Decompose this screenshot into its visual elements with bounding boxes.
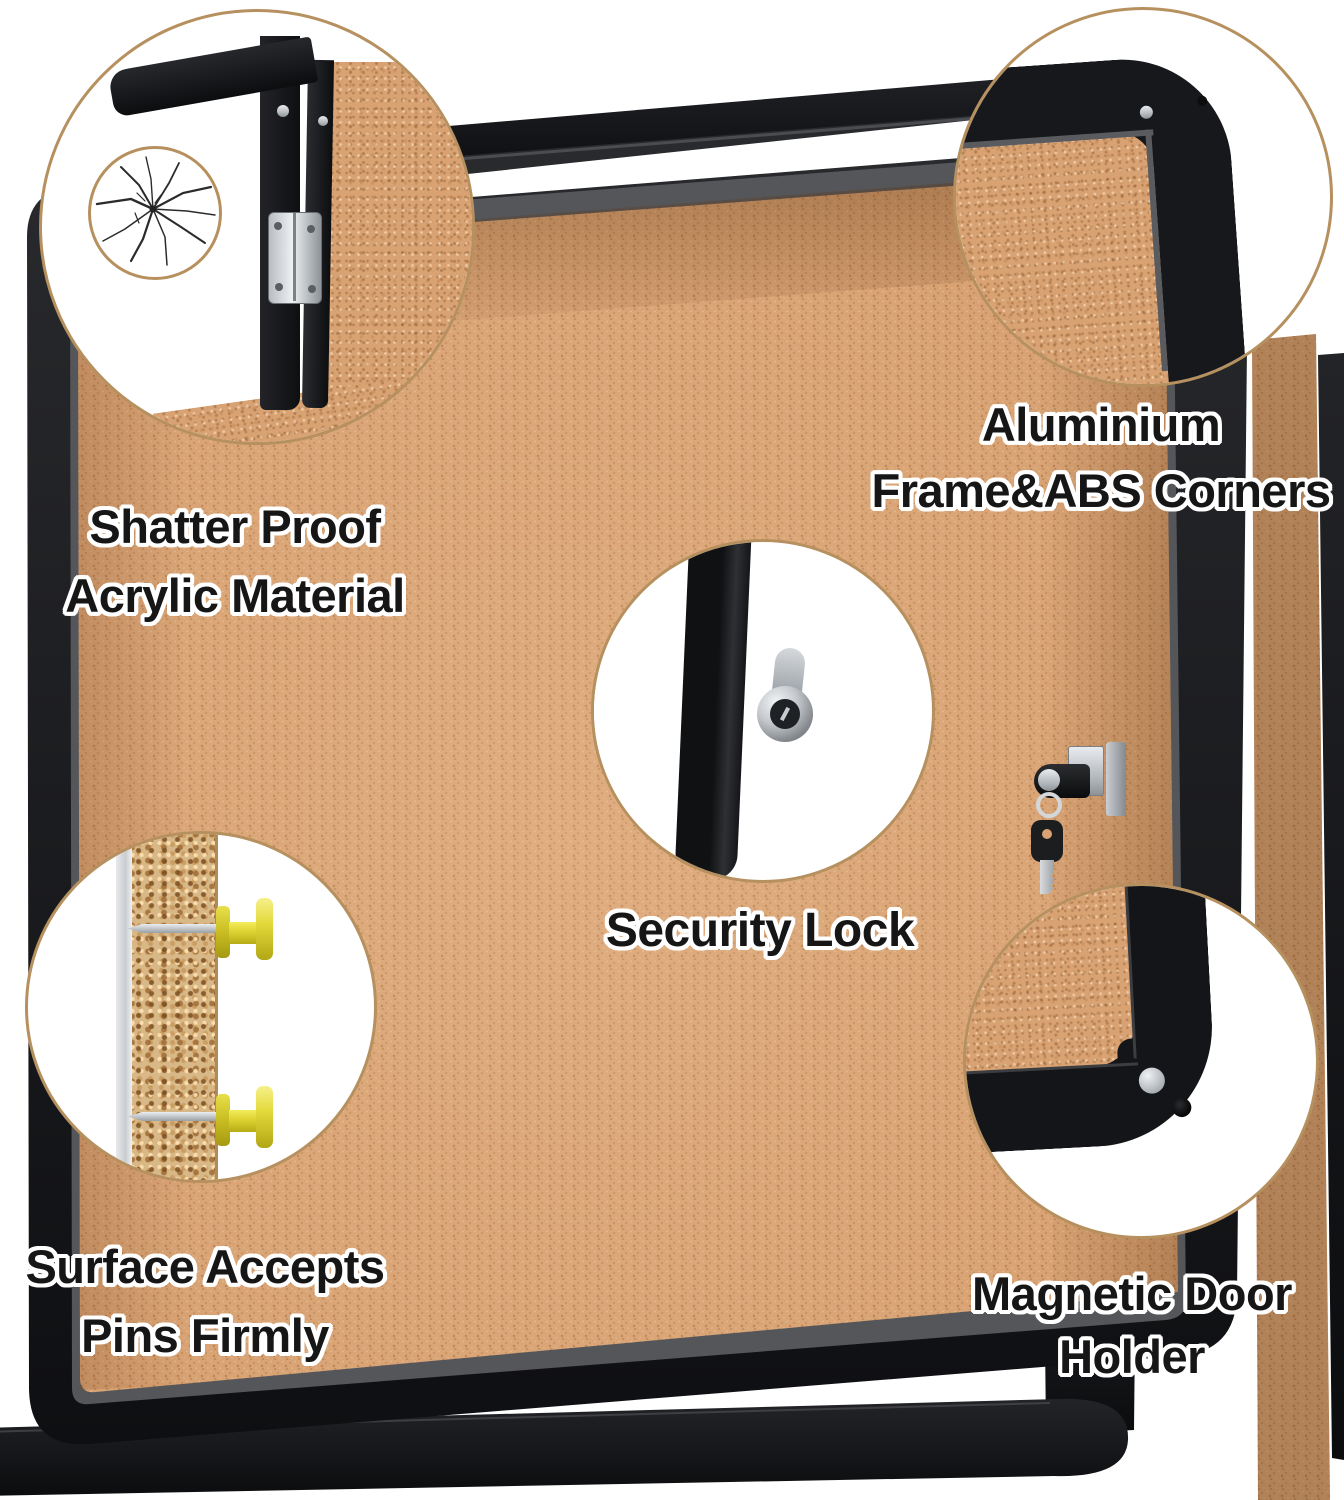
door-gap-white (591, 539, 675, 883)
callout-lock-circle (591, 539, 935, 883)
hinge-seam (293, 213, 296, 301)
crack-detail-circle (88, 146, 222, 280)
hinge-screw (274, 222, 282, 230)
pin-head (256, 1086, 273, 1148)
label-lock: Security Lock (560, 902, 960, 960)
push-pin-icon (216, 1086, 274, 1148)
pin-flange (216, 1094, 230, 1146)
pin-neck (229, 922, 257, 944)
corner-detail-group (953, 7, 1333, 387)
magnet-dot (277, 105, 289, 117)
label-acrylic: Shatter Proof Acrylic Material (0, 492, 480, 630)
key-head (1031, 820, 1063, 862)
hinge-icon (268, 212, 322, 304)
callout-corner-circle (953, 7, 1333, 387)
hinge-screw (275, 283, 283, 291)
label-line: Aluminium (855, 392, 1344, 458)
label-line: Acrylic Material (0, 561, 480, 630)
pin-head (256, 898, 273, 960)
label-line: Magnetic Door (928, 1262, 1336, 1325)
door-strike-plate (1106, 742, 1126, 816)
label-magnet: Magnetic Door Holder (928, 1262, 1336, 1388)
acrylic-layer (116, 834, 132, 1183)
lock-face (1038, 769, 1060, 791)
label-line: Surface Accepts (0, 1232, 415, 1301)
cork-layer (132, 834, 218, 1183)
push-pin-icon (216, 898, 274, 960)
key-head-hole (1042, 829, 1052, 839)
magnet-detail-group (963, 883, 1319, 1239)
lock-keyhole (770, 699, 800, 729)
keyhole-slot (780, 707, 790, 721)
pin-needle (128, 924, 220, 933)
label-line: Frame&ABS Corners (855, 458, 1344, 524)
frame-edge-bar (674, 539, 751, 881)
label-pins: Surface Accepts Pins Firmly (0, 1232, 415, 1370)
shatterproof-crack-icon (91, 149, 219, 277)
label-line: Security Lock (560, 902, 960, 960)
label-line: Holder (928, 1325, 1336, 1388)
pin-flange (216, 906, 230, 958)
key-ring-icon (1036, 792, 1062, 818)
label-line: Pins Firmly (0, 1301, 415, 1370)
magnet-dot (318, 116, 328, 126)
callout-pins-circle (25, 831, 377, 1183)
callout-magnet-circle (963, 883, 1319, 1239)
label-corners: Aluminium Frame&ABS Corners (855, 392, 1344, 524)
magnet-screw-hole (1172, 1098, 1192, 1118)
label-line: Shatter Proof (0, 492, 480, 561)
hinge-screw (307, 225, 315, 233)
hinge-screw (308, 285, 316, 293)
product-feature-image: Shatter Proof Acrylic Material Aluminium… (0, 0, 1344, 1500)
pin-neck (229, 1110, 257, 1132)
pin-needle (128, 1112, 220, 1121)
callout-acrylic-circle (39, 9, 475, 445)
